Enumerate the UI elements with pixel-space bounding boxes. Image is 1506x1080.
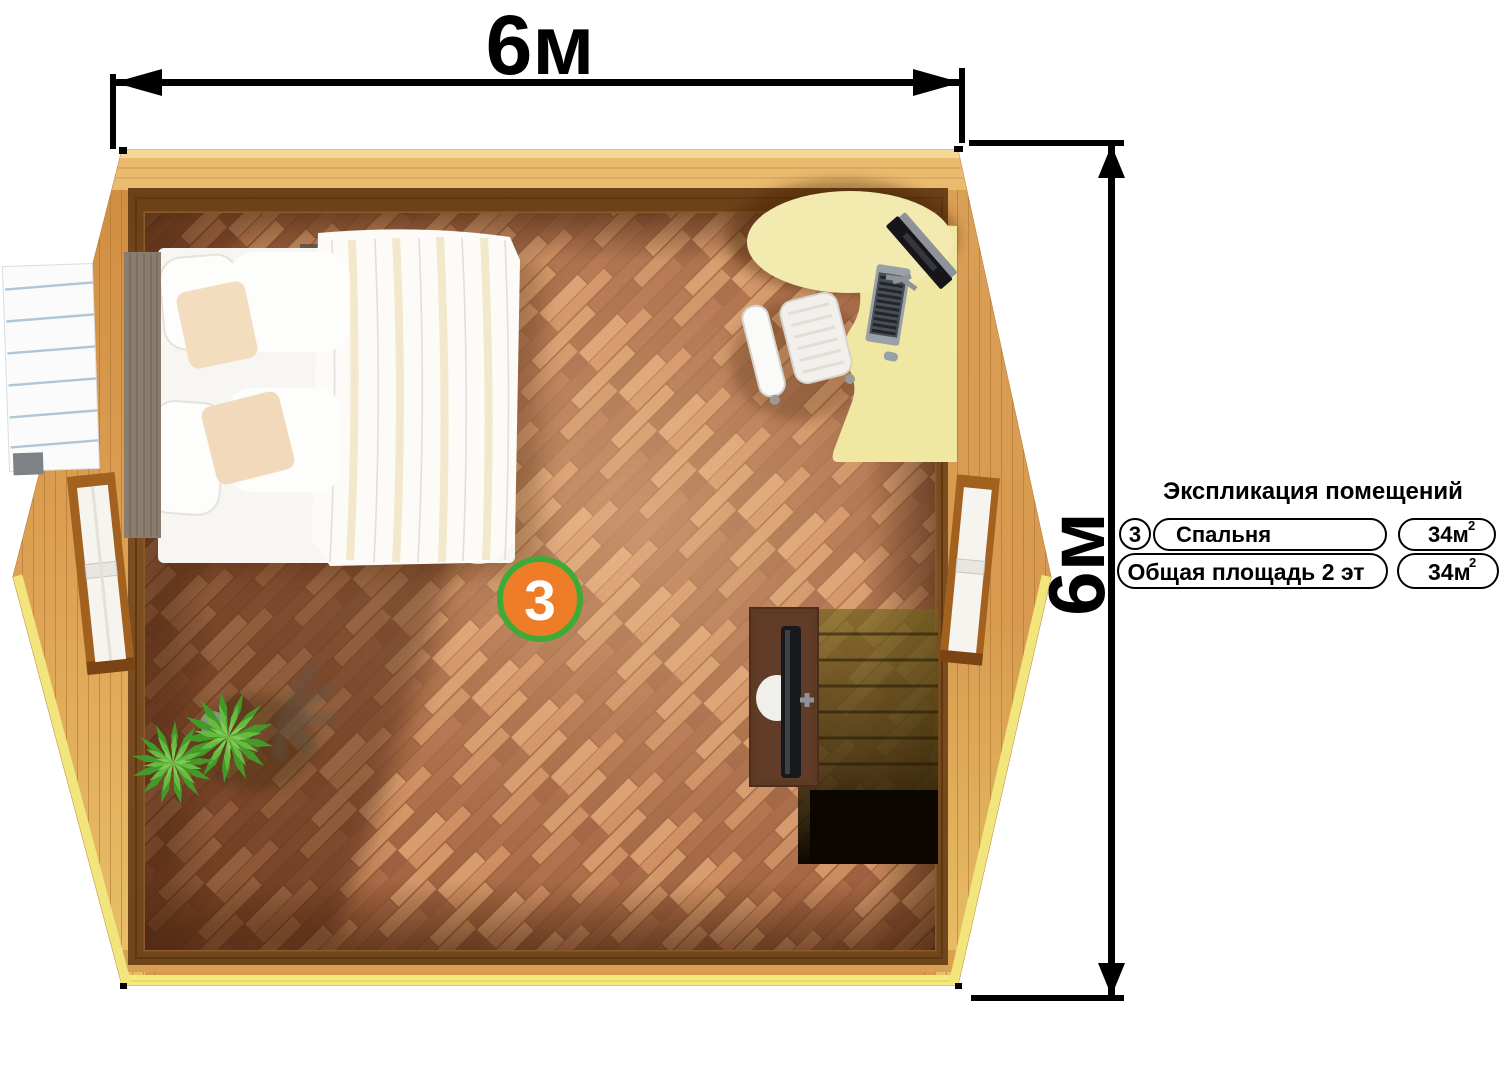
svg-text:2: 2 <box>1469 555 1476 570</box>
svg-text:3: 3 <box>524 569 556 633</box>
svg-text:Экспликация помещений: Экспликация помещений <box>1163 478 1463 505</box>
svg-text:34м: 34м <box>1428 522 1469 547</box>
svg-text:34м: 34м <box>1428 559 1471 585</box>
svg-text:Спальня: Спальня <box>1176 522 1271 547</box>
svg-text:6м: 6м <box>486 0 595 92</box>
svg-text:6м: 6м <box>1032 512 1121 616</box>
svg-text:2: 2 <box>1468 518 1475 533</box>
svg-text:Общая площадь 2 эт: Общая площадь 2 эт <box>1127 559 1364 585</box>
svg-text:3: 3 <box>1129 522 1141 547</box>
